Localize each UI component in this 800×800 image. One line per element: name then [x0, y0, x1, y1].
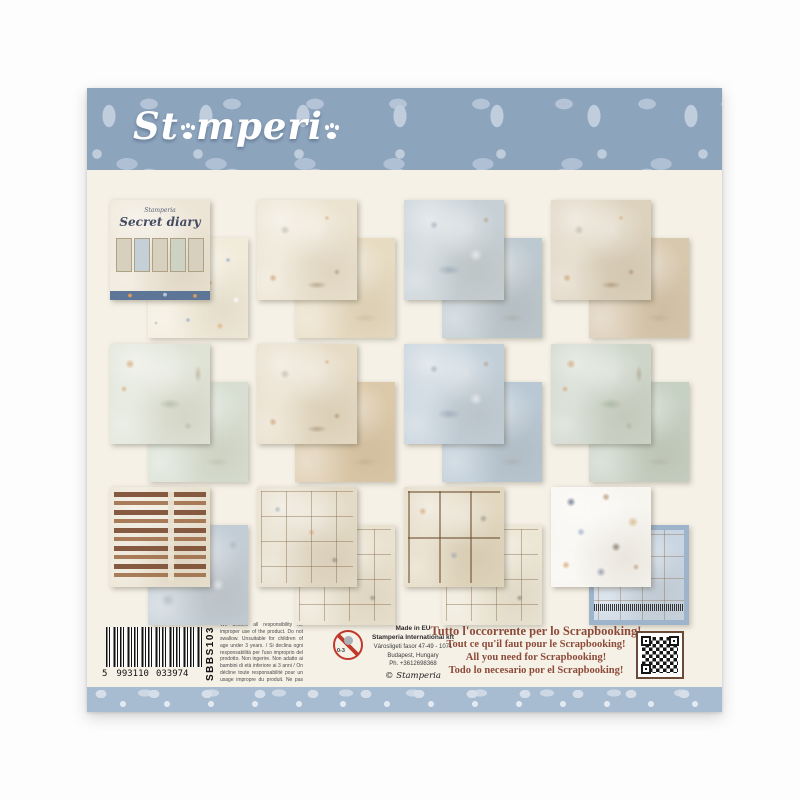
tile-window-cat [551, 200, 698, 344]
logo-text-part2: mperi [196, 104, 323, 148]
qr-code [636, 631, 684, 679]
tile-word-strips [110, 487, 257, 631]
paper-girl-books-collage [257, 200, 357, 300]
paper-watch-notes-collage [404, 344, 504, 444]
slogan-italian: Tutto l'occorrente per lo Scrapbooking! [430, 624, 642, 639]
tile-girl-with-books [257, 200, 404, 344]
barcode: 5 993110 033974 SBBS103 [102, 625, 216, 683]
paper-poppies-bird [551, 344, 651, 444]
age-warning-icon: 0-3 [333, 630, 363, 660]
bottom-info-bar: 5 993110 033974 SBBS103 We decline all r… [100, 622, 709, 684]
cover-sheet-thumbnails [116, 238, 204, 272]
slogan-english: All you need for Scrapbooking! [430, 652, 642, 665]
slogan-spanish: Todo lo necesario por el Scrapbooking! [430, 665, 642, 678]
paper-preview-grid: Stamperia Secret diary [110, 200, 698, 628]
paper-six-card-panels [404, 487, 504, 587]
paper-green-botanicals [110, 344, 210, 444]
stamperia-logo: Stmperi [133, 104, 340, 148]
barcode-group1: 993110 [116, 669, 149, 679]
cover-title-text: Secret diary [110, 215, 210, 229]
cover-bottom-strip [110, 291, 210, 300]
barcode-group2: 033974 [156, 669, 189, 679]
copyright-symbol: © [385, 671, 394, 681]
slogans-block: Tutto l'occorrente per lo Scrapbooking! … [430, 624, 642, 678]
cover-brand-text: Stamperia [110, 207, 210, 214]
page-background: Stmperi Stamperia Secret diary [0, 0, 800, 800]
tile-tags-frames [257, 487, 404, 631]
tile-sage-poppies [551, 344, 698, 488]
age-warning-label: 0-3 [337, 648, 345, 654]
barcode-bars [106, 627, 202, 667]
paper-word-strips [110, 487, 210, 587]
qr-modules [642, 637, 678, 673]
tile-secret-diary-cover: Stamperia Secret diary [110, 200, 257, 344]
paper-botanical-sketches [257, 344, 357, 444]
paw-icon [181, 124, 195, 139]
paper-pad-cover: Stamperia Secret diary [110, 200, 210, 300]
paper-blue-frame-collage [404, 200, 504, 300]
barcode-number: 5 993110 033974 [102, 669, 206, 679]
multilingual-disclaimer: We decline all responsibility for improp… [220, 622, 303, 684]
barcode-lead-digit: 5 [102, 669, 107, 679]
slogan-french: Tout ce qu'il faut pour le Scrapbooking! [430, 639, 642, 652]
top-damask-band: Stmperi [87, 88, 722, 170]
tile-botanical-sketches [257, 344, 404, 488]
bottom-damask-band [87, 687, 722, 712]
tile-six-cards [404, 487, 551, 631]
paper-window-cat-collage [551, 200, 651, 300]
paper-die-cut-elements [551, 487, 651, 587]
tile-blue-collage [404, 200, 551, 344]
paper-tags-frames [257, 487, 357, 587]
logo-text-part1: St [133, 104, 179, 148]
paw-icon [325, 124, 339, 139]
product-code: SBBS103 [205, 625, 216, 681]
tile-green-botanicals [110, 344, 257, 488]
product-back-panel: Stmperi Stamperia Secret diary [87, 88, 722, 712]
tile-blue-watercolor [404, 344, 551, 488]
tile-die-cut-elements [551, 487, 698, 631]
